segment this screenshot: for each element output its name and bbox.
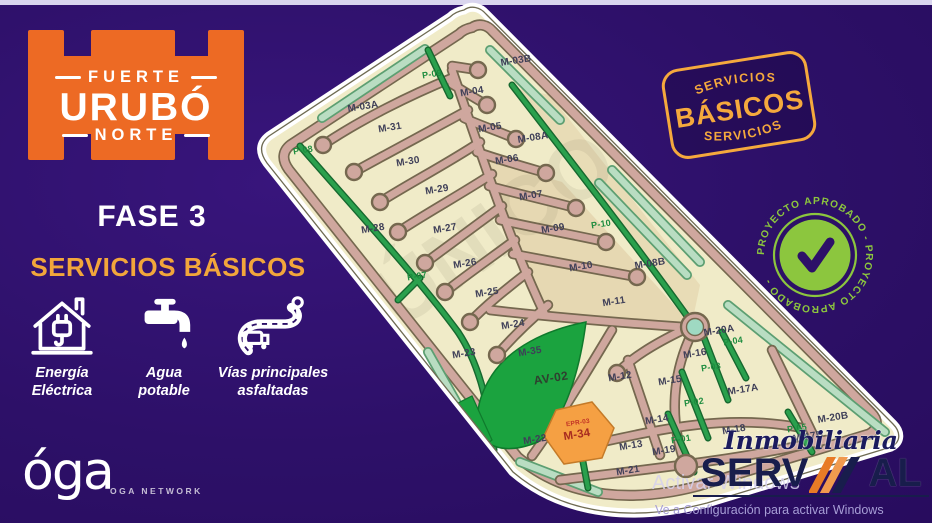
servimal-stripes-icon bbox=[809, 457, 867, 493]
developer-underline bbox=[693, 495, 929, 497]
developer-name-right: AL bbox=[868, 453, 921, 493]
project-approved-stamp: PROYECTO APROBADO - PROYECTO APROBADO - bbox=[749, 189, 881, 321]
developer-logo: Inmobiliaria SERV AL bbox=[688, 428, 932, 497]
services-badge: SERVICIOS BÁSICOS SERVICIOS bbox=[657, 50, 821, 160]
developer-name-left: SERV bbox=[700, 453, 808, 493]
developer-prefix: Inmobiliaria bbox=[688, 428, 932, 453]
poster-background: { "page": {"background": "#2d1068", "top… bbox=[0, 0, 932, 523]
developer-name: SERV AL bbox=[688, 453, 932, 493]
activate-windows-hint: Ve a Configuración para activar Windows bbox=[655, 503, 884, 517]
